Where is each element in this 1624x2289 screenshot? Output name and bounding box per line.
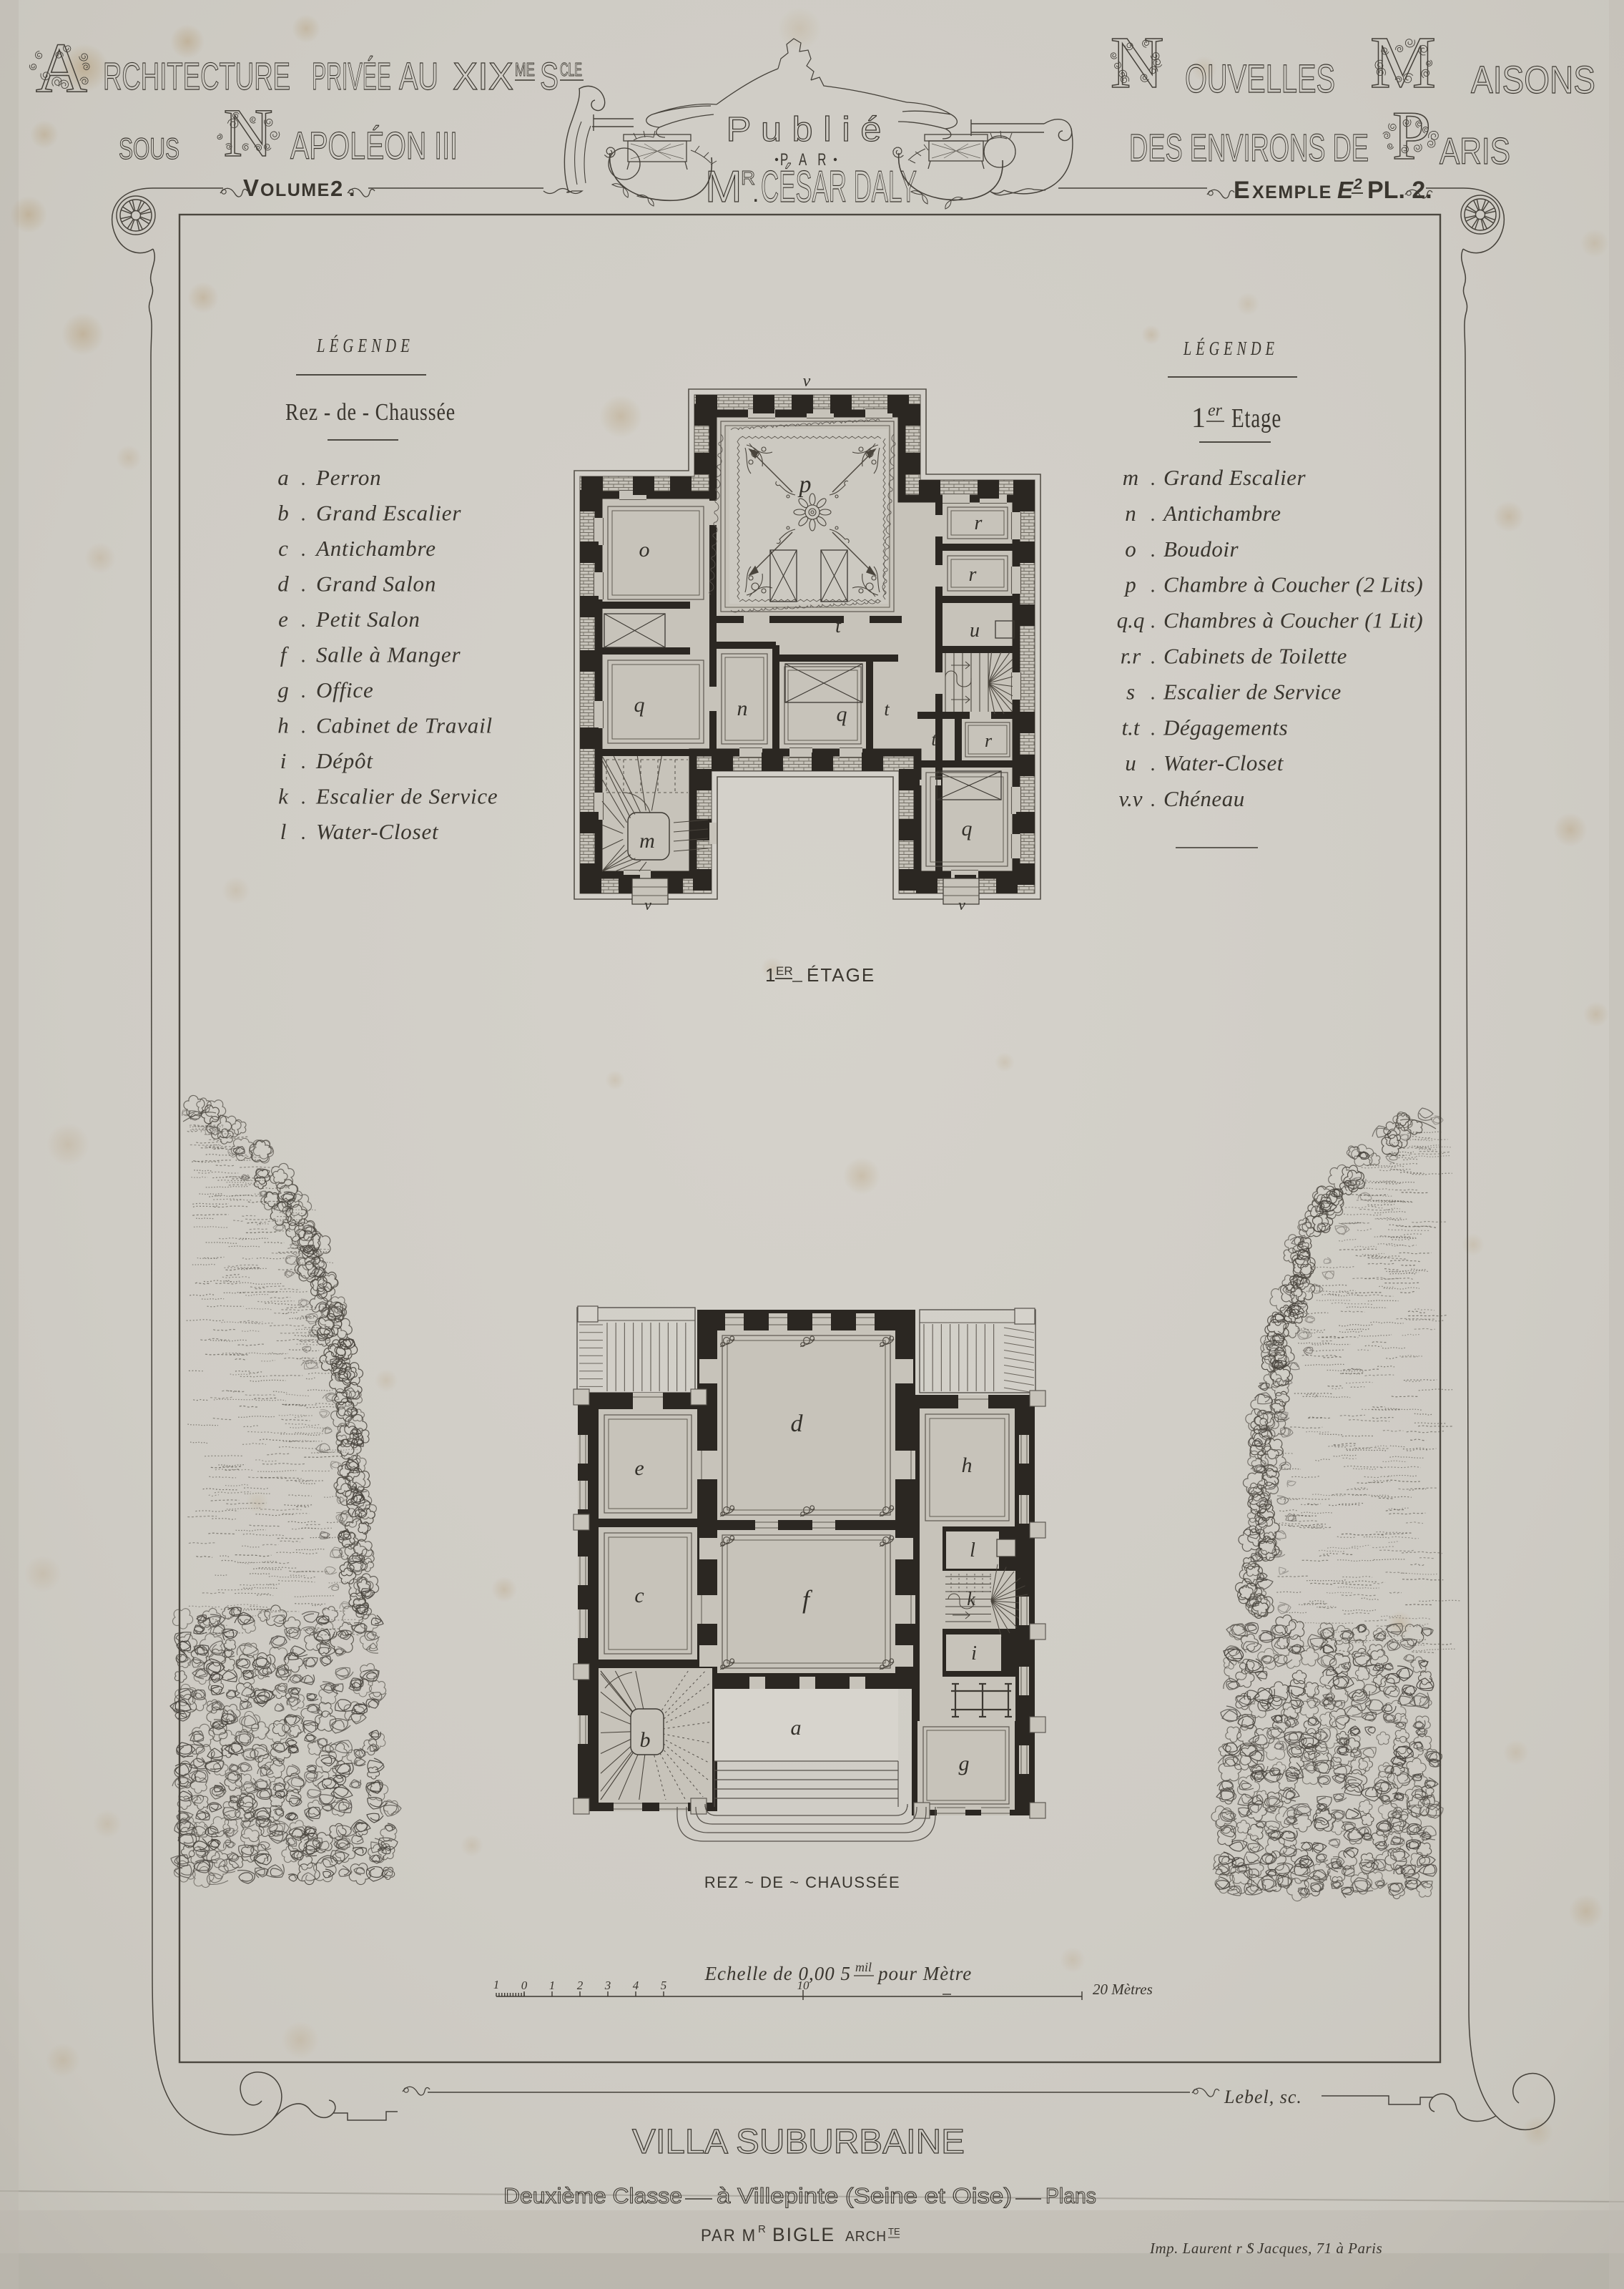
svg-text:t.t: t.t — [1122, 715, 1141, 740]
svg-text:.: . — [752, 180, 759, 207]
svg-text:i: i — [971, 1642, 977, 1665]
svg-text:VILLA SUBURBAINE: VILLA SUBURBAINE — [632, 2123, 965, 2161]
svg-text:k: k — [967, 1589, 975, 1609]
svg-text:Imp. Laurent r S: Imp. Laurent r S — [1149, 2240, 1254, 2257]
svg-text:LÉGENDE: LÉGENDE — [316, 335, 414, 356]
svg-text:h: h — [277, 713, 289, 738]
svg-text:.: . — [1151, 717, 1156, 740]
svg-text:PRIVÉE: PRIVÉE — [312, 55, 391, 98]
svg-text:er: er — [1208, 401, 1223, 420]
svg-text:DES ENVIRONS DE: DES ENVIRONS DE — [1129, 127, 1369, 170]
svg-text:TE: TE — [888, 2226, 900, 2237]
svg-text:A: A — [36, 28, 87, 107]
svg-text:e: e — [634, 1456, 644, 1480]
svg-text:u: u — [970, 619, 980, 642]
svg-text:o: o — [639, 538, 650, 562]
svg-text:RCHITECTURE: RCHITECTURE — [103, 55, 290, 98]
svg-text:m: m — [1123, 465, 1138, 490]
svg-text:Echelle de 0,00 5: Echelle de 0,00 5 — [704, 1963, 851, 1984]
svg-text:Cabinets de Toilette: Cabinets de Toilette — [1163, 644, 1347, 669]
svg-text:.: . — [301, 504, 306, 526]
svg-text:P u b l i é: P u b l i é — [727, 111, 882, 149]
svg-text:c: c — [278, 536, 288, 561]
svg-text:Water-Closet: Water-Closet — [316, 819, 439, 844]
svg-text:LÉGENDE: LÉGENDE — [1183, 338, 1279, 359]
svg-text:.: . — [301, 574, 306, 597]
svg-text:v: v — [644, 896, 651, 913]
svg-text:SOUS: SOUS — [119, 132, 179, 165]
svg-text:c: c — [634, 1584, 644, 1607]
svg-text:Antichambre: Antichambre — [1162, 501, 1281, 526]
svg-text:E: E — [1337, 177, 1354, 203]
svg-text:Deuxième Classe: Deuxième Classe — [503, 2183, 682, 2208]
svg-text:q.q: q.q — [1117, 608, 1145, 633]
svg-text:s: s — [1126, 679, 1135, 704]
svg-text:r.r: r.r — [1121, 644, 1141, 669]
svg-text:d: d — [791, 1411, 804, 1437]
svg-text:l: l — [970, 1539, 975, 1562]
svg-text:4: 4 — [633, 1979, 639, 1992]
svg-text:a: a — [277, 465, 289, 490]
svg-text:Escalier de Service: Escalier de Service — [315, 784, 498, 809]
svg-text:Chambre à Coucher (2 Lits): Chambre à Coucher (2 Lits) — [1163, 572, 1423, 597]
svg-text:h: h — [962, 1454, 973, 1477]
svg-text:ME: ME — [515, 59, 535, 80]
svg-text:Salle à Manger: Salle à Manger — [316, 642, 461, 667]
svg-text:o: o — [1125, 536, 1136, 562]
svg-text:OUVELLES: OUVELLES — [1185, 56, 1335, 101]
svg-text:v: v — [958, 896, 965, 913]
svg-text:APOLÉON III: APOLÉON III — [290, 124, 458, 167]
svg-text:Water-Closet: Water-Closet — [1163, 750, 1284, 775]
svg-text:r: r — [985, 730, 993, 751]
svg-text:q: q — [962, 817, 973, 840]
svg-text:Etage: Etage — [1231, 403, 1281, 433]
svg-text:e: e — [278, 607, 288, 632]
svg-text:Grand Escalier: Grand Escalier — [316, 501, 461, 526]
svg-text:AU: AU — [399, 55, 438, 98]
svg-text:.: . — [301, 539, 306, 561]
svg-text:g: g — [959, 1752, 970, 1775]
svg-text:v: v — [803, 372, 811, 391]
svg-text:.: . — [1151, 647, 1156, 669]
svg-text:Chéneau: Chéneau — [1163, 786, 1245, 811]
svg-text:r: r — [969, 564, 977, 586]
svg-text:CÉSAR DALY: CÉSAR DALY — [761, 162, 917, 212]
svg-text:a: a — [791, 1716, 802, 1740]
svg-text:v.v: v.v — [1119, 786, 1143, 811]
svg-text:.: . — [301, 609, 306, 632]
svg-text:1: 1 — [1191, 401, 1206, 433]
svg-text:Antichambre: Antichambre — [315, 536, 436, 561]
svg-text:Perron: Perron — [315, 465, 381, 490]
svg-text:REZ ~ DE ~ CHAUSSÉE: REZ ~ DE ~ CHAUSSÉE — [704, 1873, 900, 1891]
svg-text:.: . — [301, 822, 306, 844]
svg-text:.: . — [301, 716, 306, 738]
svg-text:q: q — [634, 693, 645, 717]
svg-text:.: . — [1151, 789, 1156, 811]
svg-text:BIGLE: BIGLE — [772, 2224, 835, 2245]
svg-text:Lebel, sc.: Lebel, sc. — [1224, 2087, 1302, 2107]
svg-text:Jacques, 71 à Paris: Jacques, 71 à Paris — [1257, 2240, 1382, 2257]
svg-text:ER: ER — [776, 964, 793, 978]
svg-text:2 .: 2 . — [330, 176, 355, 201]
svg-text:R: R — [758, 2223, 766, 2235]
svg-text:m: m — [639, 829, 655, 853]
svg-text:N: N — [223, 94, 272, 171]
svg-text:.: . — [1151, 468, 1156, 490]
svg-text:0: 0 — [521, 1979, 528, 1992]
svg-text:t: t — [835, 615, 842, 637]
svg-text:PL. 2.: PL. 2. — [1367, 177, 1432, 204]
svg-text:Dégagements: Dégagements — [1163, 715, 1288, 740]
svg-text:1: 1 — [765, 964, 775, 986]
svg-text:10: 10 — [797, 1979, 810, 1992]
svg-text:l: l — [280, 819, 287, 844]
svg-text:XEMPLE: XEMPLE — [1252, 182, 1332, 202]
svg-text:Office: Office — [316, 677, 374, 702]
svg-text:.: . — [301, 787, 306, 809]
svg-text:XIX: XIX — [453, 55, 513, 98]
svg-text:.: . — [301, 751, 306, 773]
svg-text:E: E — [1234, 177, 1250, 204]
svg-text:t: t — [884, 699, 890, 720]
svg-text:p: p — [798, 471, 812, 498]
svg-text:2: 2 — [577, 1979, 584, 1992]
svg-text:à Villepinte (Seine et Oise): à Villepinte (Seine et Oise) — [717, 2183, 1012, 2208]
svg-text:ARIS: ARIS — [1440, 131, 1510, 172]
svg-text:.: . — [301, 680, 306, 702]
svg-text:Escalier de Service: Escalier de Service — [1163, 679, 1342, 704]
svg-text:b: b — [640, 1728, 651, 1752]
svg-text:.: . — [1151, 539, 1156, 562]
svg-text:b: b — [277, 501, 289, 526]
svg-text:.: . — [1151, 753, 1156, 775]
svg-text:CLE: CLE — [560, 59, 582, 80]
svg-text:ÉTAGE: ÉTAGE — [807, 964, 875, 986]
svg-text:Plans: Plans — [1045, 2183, 1096, 2208]
svg-text:PAR M: PAR M — [701, 2226, 757, 2245]
svg-text:Boudoir: Boudoir — [1163, 536, 1239, 562]
svg-text:20 Mètres: 20 Mètres — [1093, 1981, 1153, 1998]
svg-text:q: q — [837, 702, 847, 726]
svg-text:AISONS: AISONS — [1471, 59, 1595, 102]
svg-text:1: 1 — [493, 1978, 500, 1991]
svg-text:.: . — [1151, 575, 1156, 597]
svg-text:1: 1 — [549, 1979, 556, 1992]
svg-text:M: M — [705, 162, 742, 212]
svg-text:i: i — [280, 748, 287, 773]
svg-text:S: S — [540, 55, 558, 98]
svg-text:Rez - de - Chaussée: Rez - de - Chaussée — [285, 399, 456, 426]
svg-text:.: . — [1151, 682, 1156, 704]
svg-text:Grand Salon: Grand Salon — [316, 572, 436, 597]
svg-text:Cabinet de Travail: Cabinet de Travail — [316, 713, 493, 738]
svg-text:n: n — [1125, 501, 1136, 526]
svg-text:.: . — [301, 645, 306, 667]
svg-text:n: n — [737, 697, 748, 720]
svg-text:g: g — [277, 677, 289, 702]
svg-text:ARCH: ARCH — [845, 2229, 887, 2245]
svg-text:d: d — [277, 572, 289, 597]
svg-text:V: V — [243, 175, 259, 201]
svg-text:u: u — [1125, 750, 1136, 775]
svg-text:3: 3 — [604, 1979, 611, 1992]
svg-text:5: 5 — [661, 1979, 667, 1992]
svg-text:p: p — [1123, 572, 1136, 597]
svg-text:k: k — [278, 784, 289, 809]
svg-text:t: t — [931, 729, 937, 750]
svg-text:OLUME: OLUME — [260, 180, 330, 200]
svg-text:r: r — [975, 512, 983, 534]
svg-text:pour Mètre: pour Mètre — [877, 1963, 972, 1984]
svg-text:P: P — [1392, 97, 1432, 175]
svg-text:2: 2 — [1353, 176, 1362, 192]
svg-text:.: . — [1151, 504, 1156, 526]
svg-text:mil: mil — [855, 1960, 872, 1974]
svg-text:Dépôt: Dépôt — [315, 748, 373, 773]
svg-text:.: . — [301, 468, 306, 490]
svg-text:.: . — [1151, 611, 1156, 633]
svg-text:Petit Salon: Petit Salon — [315, 607, 420, 632]
svg-text:Grand Escalier: Grand Escalier — [1163, 465, 1306, 490]
svg-text:Chambres à Coucher (1 Lit): Chambres à Coucher (1 Lit) — [1163, 608, 1423, 633]
